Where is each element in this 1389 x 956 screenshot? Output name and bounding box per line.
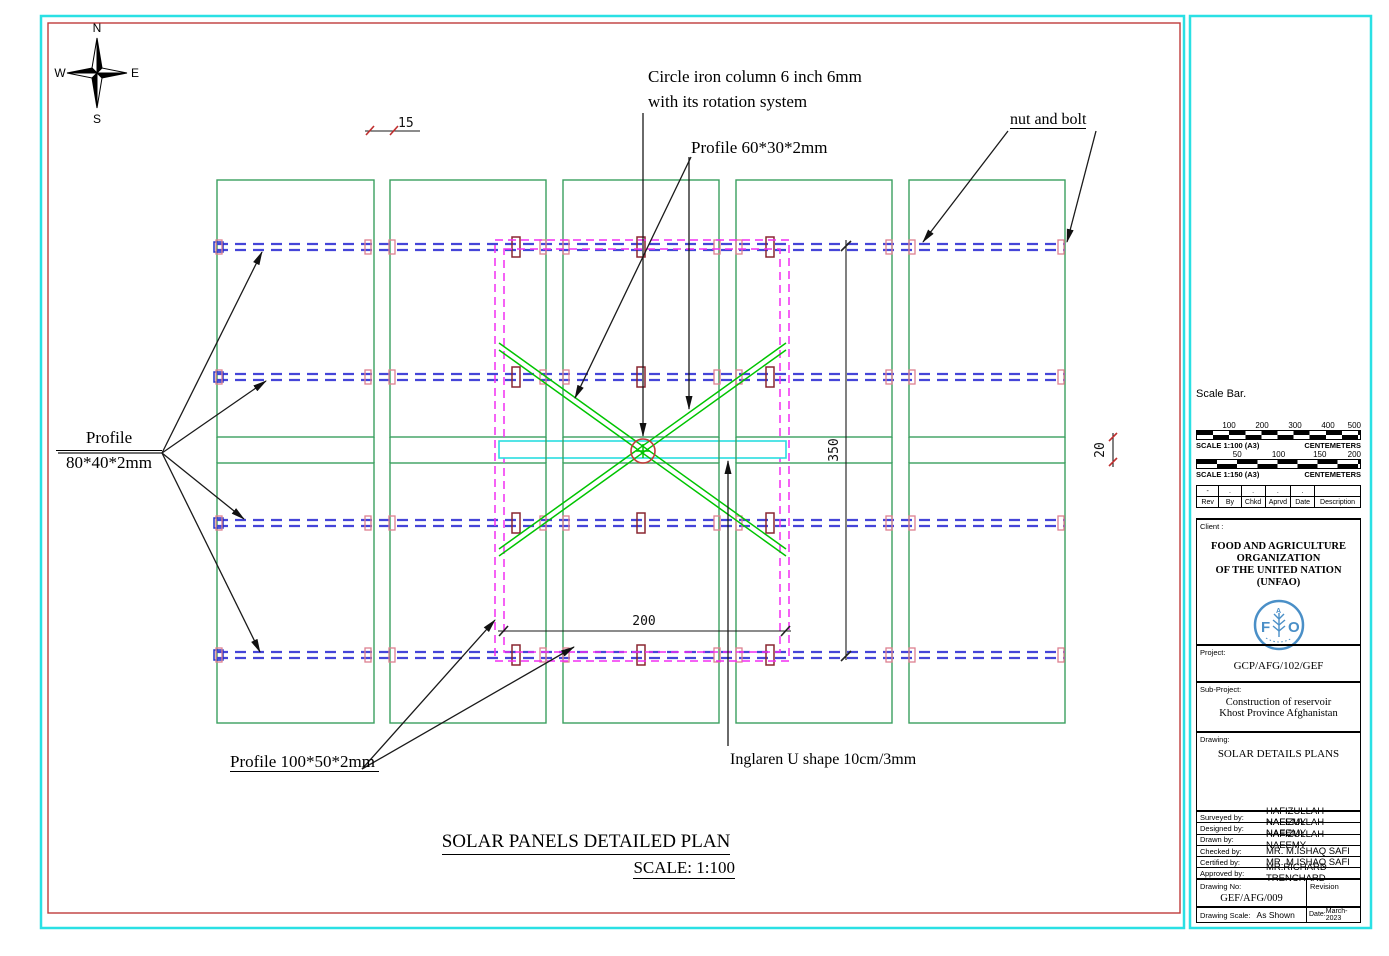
client-section: Client : FOOD AND AGRICULTURE ORGANIZATI… — [1197, 518, 1360, 644]
bolt-marker — [365, 370, 371, 384]
annotation-circle-iron-column: Circle iron column 6 inch 6mm with its r… — [648, 64, 862, 114]
date-label: Date: — [1309, 911, 1326, 918]
annotation-line: Circle iron column 6 inch 6mm — [648, 64, 862, 89]
bolt-marker — [512, 367, 520, 387]
bolt-marker — [886, 648, 892, 662]
bolt-marker — [637, 367, 645, 387]
drawing-label: Drawing: — [1197, 733, 1360, 744]
compass-point-s — [92, 73, 97, 108]
personnel-row: Checked by: MR. M.ISHAQ SAFI — [1197, 846, 1360, 857]
scale-bar-graphic — [1196, 459, 1361, 469]
leader-nut-bolt — [1067, 131, 1096, 242]
bolt-row — [214, 645, 1064, 665]
client-label: Client : — [1197, 520, 1360, 531]
dimension-15-label: 15 — [398, 116, 414, 131]
compass-point-n — [97, 38, 102, 73]
project-label: Project: — [1197, 646, 1360, 657]
bolt-marker — [365, 648, 371, 662]
revision-row: - . . . . — [1197, 486, 1361, 497]
dimension-350: 350 — [827, 240, 851, 661]
dimension-20: 20 — [1093, 433, 1117, 467]
bolt-marker — [736, 240, 742, 254]
compass-rose: N E S W — [54, 21, 139, 126]
revision-header-row: Rev By Chkd Aprvd Date Description — [1197, 497, 1361, 508]
solar-panel — [909, 463, 1065, 723]
bolt-marker — [766, 645, 774, 665]
project-section: Project: GCP/AFG/102/GEF — [1197, 644, 1360, 681]
dimension-15: 15 — [365, 116, 420, 135]
logo-letter-f: F — [1261, 619, 1270, 636]
bolt-marker — [1058, 516, 1064, 530]
bolt-marker — [909, 516, 915, 530]
date-value: March-2023 — [1326, 908, 1360, 922]
solar-panel — [563, 180, 719, 437]
annotation-inglaren: Inglaren U shape 10cm/3mm — [730, 747, 916, 772]
drawing-scale-label: Drawing Scale: — [1200, 911, 1250, 920]
drawing-title-block: SOLAR PANELS DETAILED PLAN SCALE: 1:100 — [437, 831, 735, 879]
leader-profile-80 — [162, 252, 262, 453]
subproject-value: Khost Province Afghanistan — [1197, 708, 1360, 719]
bolt-marker — [540, 240, 546, 254]
drawing-section: Drawing: SOLAR DETAILS PLANS — [1197, 731, 1360, 810]
bolt-marker — [540, 648, 546, 662]
bolt-marker — [563, 516, 569, 530]
dimension-200-label: 200 — [632, 614, 655, 629]
leader-profile-80 — [162, 381, 266, 453]
logo-letter-o: O — [1288, 619, 1300, 636]
client-name: FOOD AND AGRICULTURE ORGANIZATION — [1197, 541, 1360, 565]
solar-panel — [390, 180, 546, 437]
compass-north-label: N — [93, 21, 102, 35]
annotation-line: with its rotation system — [648, 89, 862, 114]
subproject-value: Construction of reservoir — [1197, 697, 1360, 708]
project-value: GCP/AFG/102/GEF — [1197, 660, 1360, 672]
annotation-profile-80: Profile 80*40*2mm — [56, 426, 162, 475]
scale-bar-label: SCALE 1:100 (A3) — [1196, 441, 1259, 450]
bolt-marker — [563, 240, 569, 254]
bolt-row — [214, 513, 1064, 533]
scale-bar-units: CENTEMETERS — [1304, 441, 1361, 450]
dimension-350-label: 350 — [827, 438, 842, 461]
bolt-marker — [365, 240, 371, 254]
scale-bar-graphic — [1196, 430, 1361, 440]
drawing-scale-value: As Shown — [1253, 910, 1295, 920]
bolt-marker — [766, 367, 774, 387]
solar-panel — [736, 463, 892, 723]
scale-bar-units: CENTEMETERS — [1304, 470, 1361, 479]
solar-panel — [390, 463, 546, 723]
leader-nut-bolt — [923, 131, 1008, 242]
compass-west-label: W — [54, 66, 66, 80]
annotation-nut-and-bolt: nut and bolt — [1010, 107, 1086, 132]
main-sheet-border — [41, 16, 1184, 928]
drawing-scale-row: Drawing Scale: As Shown Date:March-2023 — [1197, 908, 1360, 923]
scale-bar-ticks: 50 100 150 200 — [1196, 450, 1361, 459]
bolt-marker — [1058, 648, 1064, 662]
revision-table: - . . . . Rev By Chkd Aprvd Date Descrip… — [1196, 485, 1361, 508]
bolt-marker — [637, 513, 645, 533]
drawing-value: SOLAR DETAILS PLANS — [1197, 748, 1360, 760]
client-name: OF THE UNITED NATION (UNFAO) — [1197, 565, 1360, 589]
bolt-marker — [766, 513, 774, 533]
bolt-marker — [1058, 240, 1064, 254]
compass-south-label: S — [93, 112, 101, 126]
solar-panel — [563, 463, 719, 723]
subproject-section: Sub-Project: Construction of reservoir K… — [1197, 681, 1360, 731]
bolt-marker — [886, 516, 892, 530]
leader-profile-100 — [362, 620, 495, 769]
bolt-row — [214, 367, 1064, 387]
bolt-marker — [909, 648, 915, 662]
titleblock-sections: Client : FOOD AND AGRICULTURE ORGANIZATI… — [1196, 518, 1361, 923]
scale-bar-label: SCALE 1:150 (A3) — [1196, 470, 1259, 479]
bolt-marker — [512, 513, 520, 533]
bolt-marker — [1058, 370, 1064, 384]
bolt-marker — [909, 370, 915, 384]
drawing-scale-note: SCALE: 1:100 — [633, 858, 735, 879]
solar-panel — [217, 463, 374, 723]
bolt-marker — [512, 645, 520, 665]
bolt-marker — [365, 516, 371, 530]
drawing-sheet: N E S W — [0, 0, 1389, 956]
drawing-title: SOLAR PANELS DETAILED PLAN — [442, 831, 731, 855]
bolt-marker — [637, 645, 645, 665]
compass-east-label: E — [131, 66, 139, 80]
scale-bar-title: Scale Bar. — [1196, 388, 1361, 400]
bolt-marker — [563, 370, 569, 384]
solar-panel — [736, 180, 892, 437]
dimension-200: 200 — [498, 614, 791, 636]
bolt-marker — [736, 648, 742, 662]
dimension-20-label: 20 — [1093, 442, 1108, 458]
leader-profile-100 — [362, 647, 574, 769]
personnel-table: Surveyed by: HAFIZULLAH NAEEMY Designed … — [1197, 810, 1360, 880]
drawing-no-value: GEF/AFG/009 — [1197, 893, 1306, 904]
bolt-marker — [886, 370, 892, 384]
subproject-label: Sub-Project: — [1197, 683, 1360, 694]
solar-panel — [909, 180, 1065, 437]
bolt-marker — [909, 240, 915, 254]
scale-bar-ticks: 100 200 300 400 500 — [1196, 421, 1361, 430]
annotation-profile-60: Profile 60*30*2mm — [691, 135, 827, 160]
personnel-row: Approved by: MR.RICHARD TRENCHARD — [1197, 868, 1360, 879]
personnel-row: Drawn by: HAFIZULLAH NAEEMY — [1197, 835, 1360, 846]
leader-profile-60 — [575, 157, 691, 398]
annotation-profile-100: Profile 100*50*2mm — [230, 749, 379, 774]
inner-sheet-border — [48, 23, 1180, 913]
scale-bar-1-100: 100 200 300 400 500 SCALE 1:100 (A3) CEN… — [1196, 421, 1361, 450]
leader-profile-80 — [162, 453, 260, 652]
scale-bar-1-150: 50 100 150 200 SCALE 1:150 (A3) CENTEMET… — [1196, 450, 1361, 479]
bolt-marker — [886, 240, 892, 254]
compass-point-w — [67, 68, 97, 73]
logo-wheat — [1273, 613, 1285, 637]
